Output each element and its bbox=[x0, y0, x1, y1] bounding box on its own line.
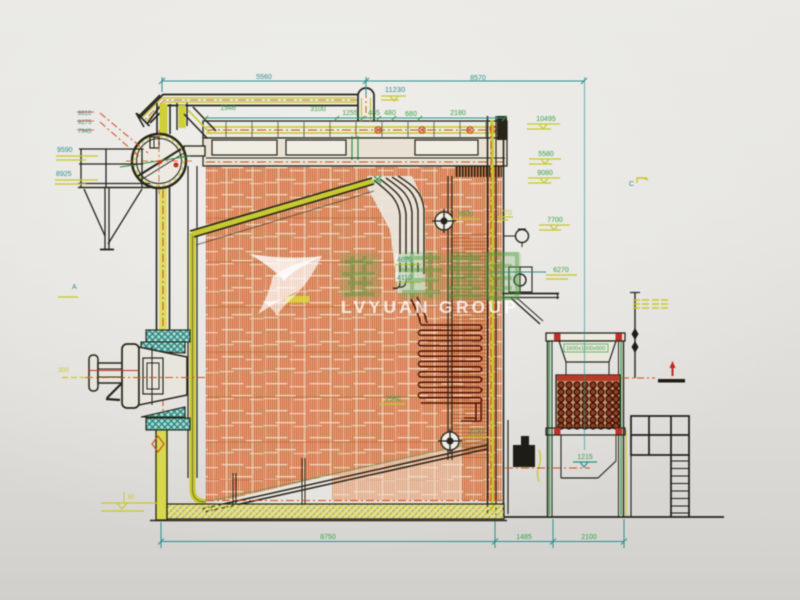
svg-text:770: 770 bbox=[500, 210, 512, 217]
svg-text:1215: 1215 bbox=[577, 454, 593, 461]
svg-text:8603: 8603 bbox=[458, 211, 474, 218]
svg-text:300: 300 bbox=[58, 367, 69, 374]
svg-text:5560: 5560 bbox=[256, 74, 272, 81]
svg-text:480: 480 bbox=[384, 110, 396, 117]
svg-text:3100: 3100 bbox=[310, 106, 326, 113]
svg-text:8925: 8925 bbox=[56, 171, 72, 178]
svg-text:9590: 9590 bbox=[57, 147, 73, 154]
svg-text:8570: 8570 bbox=[470, 75, 486, 82]
svg-text:680: 680 bbox=[405, 111, 417, 118]
svg-text:60: 60 bbox=[128, 495, 135, 501]
svg-text:1600x1600x500: 1600x1600x500 bbox=[566, 346, 605, 352]
svg-text:6270: 6270 bbox=[553, 267, 569, 274]
svg-text:1546: 1546 bbox=[220, 105, 236, 112]
svg-text:485: 485 bbox=[368, 110, 380, 117]
svg-text:C: C bbox=[629, 181, 634, 188]
svg-text:2100: 2100 bbox=[468, 429, 484, 436]
svg-text:2100: 2100 bbox=[581, 534, 597, 541]
svg-text:8750: 8750 bbox=[320, 534, 336, 541]
svg-text:2180: 2180 bbox=[450, 110, 466, 117]
svg-text:A: A bbox=[72, 284, 77, 291]
svg-text:10495: 10495 bbox=[536, 116, 556, 123]
svg-text:11230: 11230 bbox=[385, 85, 405, 94]
svg-text:LVYUAN GROUP: LVYUAN GROUP bbox=[341, 297, 519, 317]
svg-text:2960: 2960 bbox=[385, 396, 401, 403]
svg-text:9080: 9080 bbox=[537, 170, 553, 177]
svg-text:7700: 7700 bbox=[547, 217, 563, 224]
svg-text:5580: 5580 bbox=[538, 151, 554, 158]
svg-text:1255: 1255 bbox=[342, 110, 358, 117]
svg-text:1485: 1485 bbox=[516, 534, 532, 541]
